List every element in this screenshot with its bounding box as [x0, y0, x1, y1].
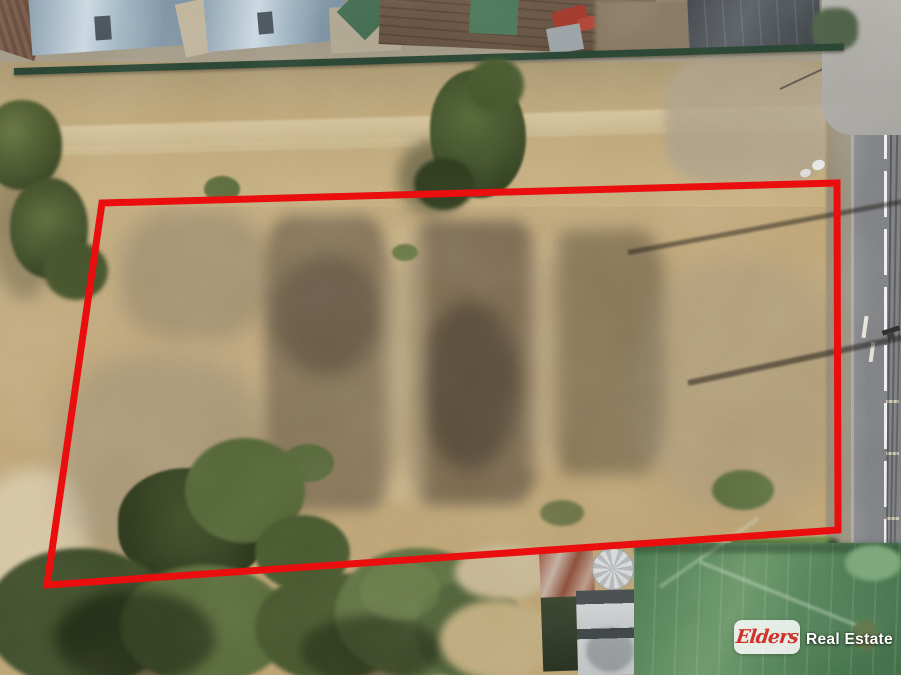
- white-striped-shed: [576, 589, 644, 675]
- gravel-patch: [665, 58, 830, 183]
- brown-tile-roof: [0, 0, 53, 61]
- canopy-band-3: [255, 572, 405, 675]
- green-tuft-2: [712, 470, 774, 510]
- pole-shadow-3: [756, 557, 901, 586]
- green-veranda-roof: [469, 0, 519, 35]
- green-tuft-1: [282, 444, 334, 482]
- brown-shingle-roof: [379, 0, 657, 56]
- dirt-track-secondary: [0, 138, 420, 158]
- bush-above-corner: [204, 176, 240, 202]
- elders-logo-badge: Elders: [734, 620, 800, 654]
- pale-green-roof-section: [845, 545, 901, 581]
- photo-mottle-overlay: [0, 0, 901, 675]
- dirt-yard-top: [595, 0, 695, 55]
- ground-patch-gray-right: [640, 260, 840, 510]
- verge-strip: [0, 52, 901, 207]
- power-wire-3: [891, 0, 901, 675]
- power-pole-crossarm: [882, 325, 901, 335]
- house-wall-gap: [175, 0, 225, 58]
- green-gable-roof: [337, 0, 394, 40]
- tree-cluster-1: [118, 468, 268, 583]
- tree-cluster-3: [255, 515, 350, 590]
- big-tree-canopy: [430, 70, 526, 198]
- green-tuft-3: [392, 244, 418, 261]
- road-asphalt: [853, 0, 901, 675]
- big-tree-lobe-top: [468, 58, 524, 112]
- top-houses-band: [0, 0, 860, 62]
- water-tank-center: [608, 564, 616, 572]
- parking-bay-tick-1: [886, 400, 899, 403]
- big-tree-lobe-bottom: [414, 158, 474, 210]
- sand-patch-outside-lot: [0, 470, 90, 630]
- green-tuft-4: [540, 500, 584, 526]
- canopy-band-5: [415, 580, 525, 675]
- boundary-polygon: [47, 183, 838, 585]
- power-wire-2: [888, 0, 900, 675]
- photo-grain-overlay: [0, 0, 901, 675]
- house-walls-middle: [329, 4, 401, 54]
- roof-vent-2: [257, 11, 274, 34]
- shrub-left-1: [0, 100, 62, 190]
- dry-grass-gap: [440, 600, 555, 675]
- white-drum-2: [799, 168, 812, 179]
- canopy-band-2: [120, 565, 290, 675]
- roof-vent-1: [94, 15, 112, 40]
- white-drum-1: [811, 158, 827, 172]
- road-asphalt-top: [853, 0, 901, 70]
- road-marking-dash-2: [869, 342, 876, 362]
- blue-metal-roof-2: [203, 0, 348, 52]
- gray-mottle-topleft: [120, 210, 270, 340]
- green-metal-roof-house: [634, 543, 901, 675]
- canopy-shadow-2: [300, 615, 440, 675]
- canopy-band-1: [0, 548, 175, 675]
- power-wire-1: [884, 0, 893, 675]
- dirt-track: [0, 104, 868, 153]
- shrub-left-3: [44, 242, 108, 300]
- lawn-bottom-right: [731, 536, 833, 611]
- canopy-highlight: [360, 560, 440, 620]
- real-estate-label: Real Estate: [806, 631, 893, 649]
- hedge-row-road: [824, 538, 842, 623]
- green-roof-top-shade: [634, 543, 901, 553]
- ground-patch-middle-dark: [420, 300, 520, 470]
- big-tree-shadow: [398, 140, 468, 215]
- paving-top-right: [822, 0, 901, 135]
- power-pole-bracket: [884, 554, 901, 562]
- dark-gray-hip-roof: [687, 0, 821, 52]
- gray-garden-shed-top: [546, 23, 584, 55]
- ground-patch-middle: [405, 220, 540, 505]
- shed-arc-shadow: [586, 628, 634, 672]
- road-kerb: [851, 30, 854, 675]
- power-pole-top: [887, 332, 894, 339]
- shrub-left-2: [10, 178, 88, 278]
- tree-cluster-2: [185, 438, 305, 543]
- pale-dirt-pad: [455, 545, 550, 600]
- rusty-shed-roof: [539, 550, 595, 599]
- hedge-top-right: [812, 8, 858, 50]
- aerial-photo: Elders Real Estate: [0, 0, 901, 675]
- shrub-shadow-left: [0, 140, 60, 300]
- road-shoulder: [826, 0, 860, 675]
- ground-patch-right: [545, 230, 665, 475]
- parking-bay-tick-3: [886, 517, 899, 520]
- light-grass-strip-1: [385, 230, 425, 500]
- water-tank: [592, 548, 634, 590]
- ground-patch-left: [265, 215, 400, 510]
- green-fence-line: [14, 43, 844, 75]
- boundary-overlay: [0, 0, 901, 675]
- pole-shadow-1: [628, 199, 901, 255]
- road-lane-line: [884, 55, 887, 675]
- wire-shadow-top: [780, 33, 899, 90]
- dark-shed: [541, 596, 580, 671]
- canopy-band-4: [335, 548, 500, 675]
- red-car-1: [551, 4, 589, 30]
- parking-bay-tick-4: [886, 578, 899, 581]
- parking-bay-tick-2: [886, 452, 899, 455]
- road-marking-dash-1: [861, 316, 868, 338]
- green-roof-ridge-2: [659, 517, 760, 589]
- elders-logo-text: Elders: [735, 628, 799, 647]
- blue-metal-roof-1: [28, 0, 197, 56]
- canopy-shadow-1: [55, 590, 215, 675]
- pole-shadow-2: [687, 334, 901, 386]
- light-grass-strip-2: [528, 240, 560, 470]
- ground-patch-gray-bottomleft: [60, 355, 270, 565]
- ground-patch-left-dark: [272, 255, 382, 375]
- red-car-2: [577, 15, 598, 32]
